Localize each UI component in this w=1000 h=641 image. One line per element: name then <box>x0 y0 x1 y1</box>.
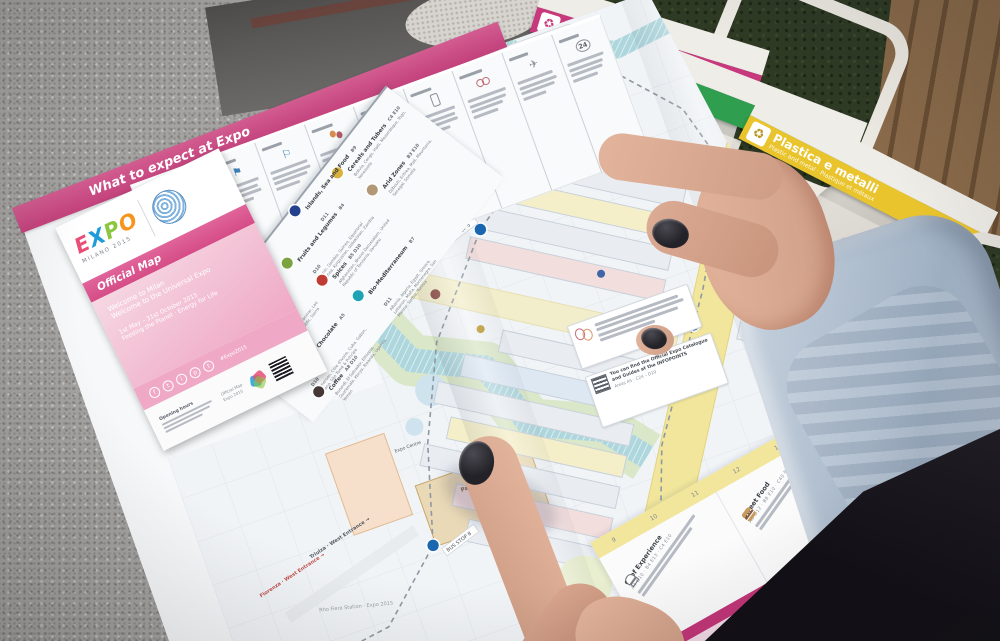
cluster-dot <box>280 255 295 270</box>
facebook-icon: f <box>147 385 162 400</box>
rings-icon <box>475 75 493 89</box>
plane-icon: ✈ <box>527 57 539 70</box>
pinterest-icon: p <box>188 365 203 380</box>
recycle-icon: ♻ <box>745 121 772 148</box>
tumblr-icon: t <box>201 358 216 373</box>
cluster-dot <box>365 182 380 197</box>
pennant-icon: ⚐ <box>280 147 293 161</box>
instagram-icon: i <box>174 371 189 386</box>
grid-number: 12 <box>731 465 741 475</box>
qr-code <box>268 356 293 381</box>
expo-heart-logo <box>247 369 268 390</box>
theater-masks-icon <box>573 322 596 345</box>
24h-icon: 24 <box>574 37 592 54</box>
smartphone-icon <box>429 92 441 107</box>
photo-scene: a · M ♻ Indifferenziato Not Recyclable ·… <box>0 0 1000 641</box>
cluster-dot <box>350 288 365 303</box>
qr-guide-icon <box>591 374 611 394</box>
twitter-icon: t <box>161 378 176 393</box>
grid-number: 10 <box>649 512 659 522</box>
globe-icon <box>146 184 191 229</box>
grid-number: 9 <box>610 536 617 544</box>
hashtag-label: #Expo2015 <box>219 344 248 362</box>
